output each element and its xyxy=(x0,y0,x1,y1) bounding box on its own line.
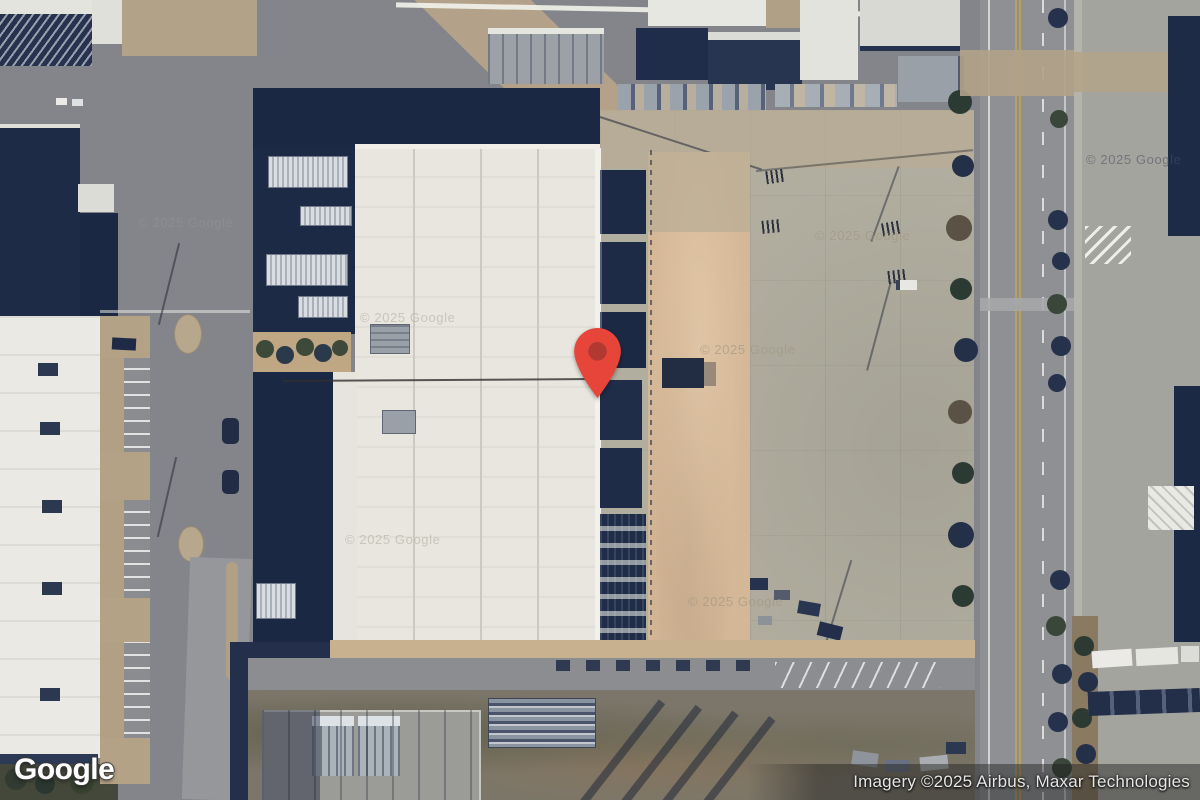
white-car xyxy=(896,280,917,290)
panel-dots xyxy=(600,514,646,642)
hvac-unit xyxy=(266,254,348,286)
tree xyxy=(256,340,274,358)
navy-building xyxy=(0,124,80,336)
equipment-row xyxy=(618,84,766,112)
navy-building xyxy=(708,32,802,90)
roof-white xyxy=(860,0,960,51)
dirt-north xyxy=(648,152,750,232)
roof-seam xyxy=(480,148,482,640)
roof-vent xyxy=(40,422,60,435)
google-logo[interactable]: Google xyxy=(14,753,114,787)
hvac-unit xyxy=(268,156,348,188)
hatched-pad xyxy=(1148,486,1194,530)
shed xyxy=(662,358,704,388)
parking-stalls xyxy=(124,316,150,784)
lane-line-dashed xyxy=(1042,0,1044,800)
substation-shadow xyxy=(262,710,320,800)
pole-shadow xyxy=(157,457,177,537)
stall-lines xyxy=(775,662,940,688)
planter-block xyxy=(100,452,150,500)
pallet xyxy=(946,742,966,754)
hvac-unit xyxy=(256,583,296,619)
navy-building xyxy=(636,28,708,80)
median-tree xyxy=(1048,712,1068,732)
planter-block xyxy=(100,598,150,642)
trailer xyxy=(1181,646,1199,662)
tree xyxy=(952,585,974,607)
roof-white xyxy=(648,0,766,26)
tree xyxy=(948,400,972,424)
roof-seam xyxy=(537,148,539,640)
roof-edge xyxy=(355,144,600,149)
warehouse-roof xyxy=(355,146,600,642)
curb-line xyxy=(100,310,250,313)
lane-line xyxy=(988,0,990,800)
yard-equipment xyxy=(758,616,772,625)
trailer xyxy=(1091,649,1132,669)
roof-white xyxy=(800,0,858,80)
map-attribution: Imagery ©2025 Airbus, Maxar Technologies xyxy=(853,772,1190,792)
pipe-stack xyxy=(488,698,596,748)
striped-roof xyxy=(0,14,92,66)
panel-slab xyxy=(600,170,646,234)
median-tree xyxy=(1048,210,1068,230)
roof-vent xyxy=(42,582,62,595)
tree xyxy=(332,340,348,356)
tree xyxy=(952,155,974,177)
satellite-map-canvas[interactable]: © 2025 Google © 2025 Google © 2025 Googl… xyxy=(0,0,1200,800)
lane-line-yellow xyxy=(1015,0,1017,800)
planter-block xyxy=(100,316,150,358)
roof-vent xyxy=(40,688,60,701)
roof-unit xyxy=(370,324,410,354)
dirt-strip xyxy=(330,640,975,660)
roof-small xyxy=(92,0,126,44)
crosswalk-hatch xyxy=(1085,226,1131,264)
navy-building xyxy=(1168,16,1200,236)
parked-car xyxy=(112,337,137,350)
warehouse-roof xyxy=(333,372,357,642)
parked-car xyxy=(222,418,239,444)
car xyxy=(56,98,67,105)
median-tree xyxy=(1050,110,1068,128)
median-tree xyxy=(1052,664,1072,684)
roof-seam xyxy=(413,148,415,640)
median-tree xyxy=(1050,570,1070,590)
fence-line xyxy=(650,150,652,645)
parked-car-row xyxy=(556,660,756,671)
map-pin[interactable] xyxy=(574,328,621,398)
equipment-row xyxy=(775,84,897,107)
tree xyxy=(950,278,972,300)
copyright-watermark: © 2025 Google xyxy=(138,215,233,230)
yard-equipment xyxy=(750,578,768,590)
glass-rack xyxy=(765,169,785,184)
tan-gap xyxy=(766,0,800,28)
median-tree xyxy=(1048,374,1066,392)
tree xyxy=(314,344,332,362)
tree xyxy=(946,215,972,241)
planter-strip xyxy=(100,316,124,784)
panel-slab xyxy=(600,242,646,304)
median-tree xyxy=(1047,294,1067,314)
equipment-block xyxy=(488,28,604,84)
pin-dot xyxy=(588,342,607,361)
median-tree xyxy=(1051,336,1071,356)
median-tree xyxy=(1052,252,1070,270)
tan-lot xyxy=(122,0,257,56)
roof-vent xyxy=(42,500,62,513)
glass-rack xyxy=(761,219,780,234)
truck-row xyxy=(1088,688,1200,716)
yard-equipment xyxy=(774,590,790,600)
tree xyxy=(276,346,294,364)
tree xyxy=(952,462,974,484)
roof-unit xyxy=(382,410,416,434)
parked-car xyxy=(222,470,239,494)
roof-piece xyxy=(78,184,114,212)
hvac-unit xyxy=(298,296,348,318)
attribution-band: Imagery ©2025 Airbus, Maxar Technologies xyxy=(748,764,1200,800)
light-pole-base xyxy=(174,314,202,354)
hvac-unit xyxy=(300,206,352,226)
median-tree xyxy=(1046,616,1066,636)
navy-building xyxy=(80,213,118,333)
tree xyxy=(296,338,314,356)
panel-slab xyxy=(600,448,642,508)
tree xyxy=(1078,672,1098,692)
roof-vent xyxy=(38,363,58,376)
car xyxy=(72,99,83,106)
tree xyxy=(948,522,974,548)
tree xyxy=(954,338,978,362)
pin-body xyxy=(574,328,621,398)
median-tree xyxy=(1048,8,1068,28)
warehouse-shadow-band xyxy=(253,88,600,150)
lane-line-yellow xyxy=(1019,0,1021,800)
trailer xyxy=(1136,647,1179,666)
tree xyxy=(1076,744,1096,764)
shed-shadow xyxy=(704,362,716,386)
